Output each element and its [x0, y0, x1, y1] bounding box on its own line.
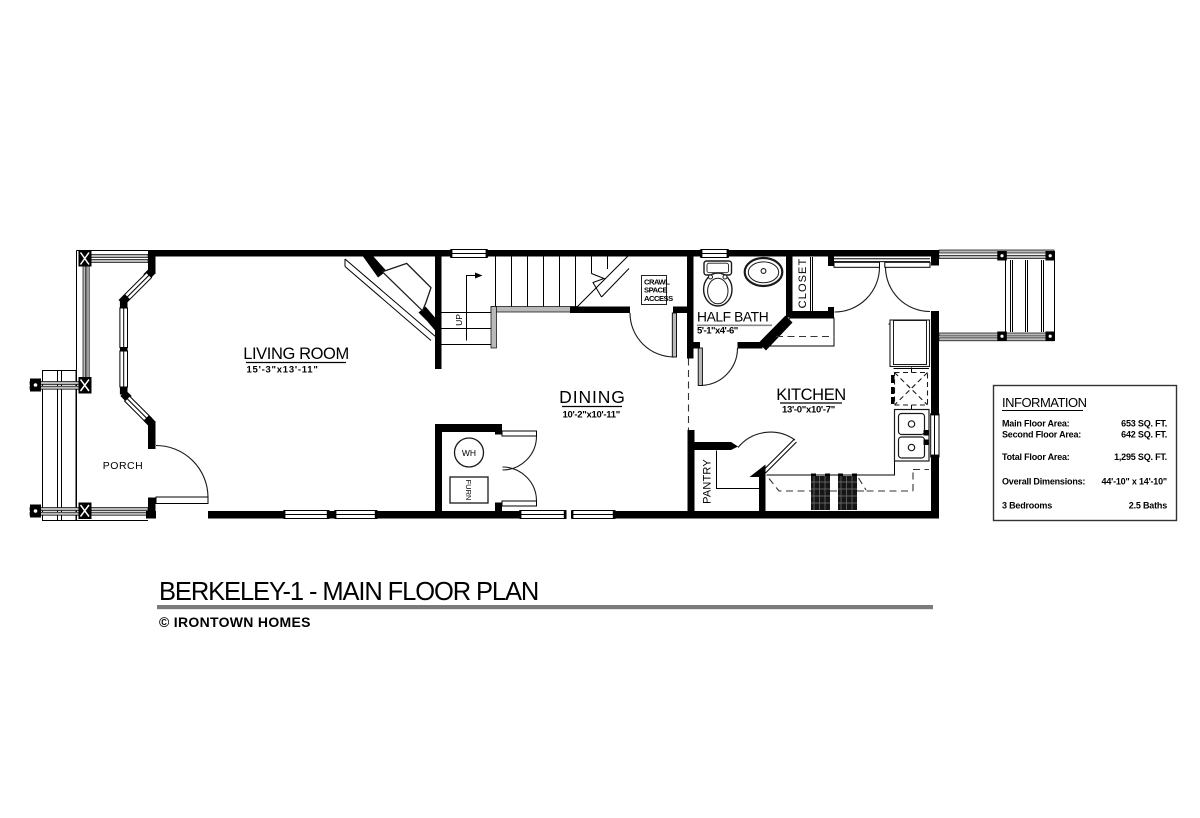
svg-text:Total Floor Area:: Total Floor Area:: [1002, 452, 1070, 462]
svg-text:PORCH: PORCH: [103, 460, 143, 472]
svg-text:HALF BATH: HALF BATH: [697, 310, 768, 325]
svg-text:13'-0"x10'-7": 13'-0"x10'-7": [782, 405, 835, 416]
svg-text:Overall Dimensions:: Overall Dimensions:: [1002, 477, 1085, 487]
svg-text:5'-1"x4'-6": 5'-1"x4'-6": [697, 326, 738, 337]
svg-text:© IRONTOWN HOMES: © IRONTOWN HOMES: [159, 614, 311, 630]
svg-text:3 Bedrooms: 3 Bedrooms: [1002, 501, 1052, 511]
svg-text:10'-2"x10'-11": 10'-2"x10'-11": [563, 410, 620, 421]
svg-text:UP: UP: [454, 314, 464, 326]
svg-text:Second Floor Area:: Second Floor Area:: [1002, 430, 1081, 440]
svg-text:Main Floor Area:: Main Floor Area:: [1002, 419, 1070, 429]
svg-text:INFORMATION: INFORMATION: [1002, 395, 1087, 410]
svg-text:ACCESS: ACCESS: [644, 294, 673, 303]
svg-text:DINING: DINING: [559, 387, 626, 407]
svg-text:BERKELEY-1 - MAIN FLOOR PLAN: BERKELEY-1 - MAIN FLOOR PLAN: [159, 578, 538, 606]
svg-text:LIVING ROOM: LIVING ROOM: [243, 345, 349, 363]
svg-text:CLOSET: CLOSET: [797, 258, 809, 309]
svg-text:2.5 Baths: 2.5 Baths: [1129, 501, 1167, 511]
svg-text:15'-3"x13'-11": 15'-3"x13'-11": [247, 365, 319, 376]
svg-text:1,295 SQ. FT.: 1,295 SQ. FT.: [1114, 452, 1167, 462]
svg-text:653 SQ. FT.: 653 SQ. FT.: [1121, 419, 1167, 429]
svg-text:FURN: FURN: [464, 480, 473, 501]
svg-text:WH: WH: [462, 448, 476, 458]
svg-text:KITCHEN: KITCHEN: [776, 386, 846, 404]
svg-text:44'-10" x 14'-10": 44'-10" x 14'-10": [1102, 477, 1167, 487]
svg-text:PANTRY: PANTRY: [702, 459, 714, 504]
svg-text:642 SQ. FT.: 642 SQ. FT.: [1121, 430, 1167, 440]
